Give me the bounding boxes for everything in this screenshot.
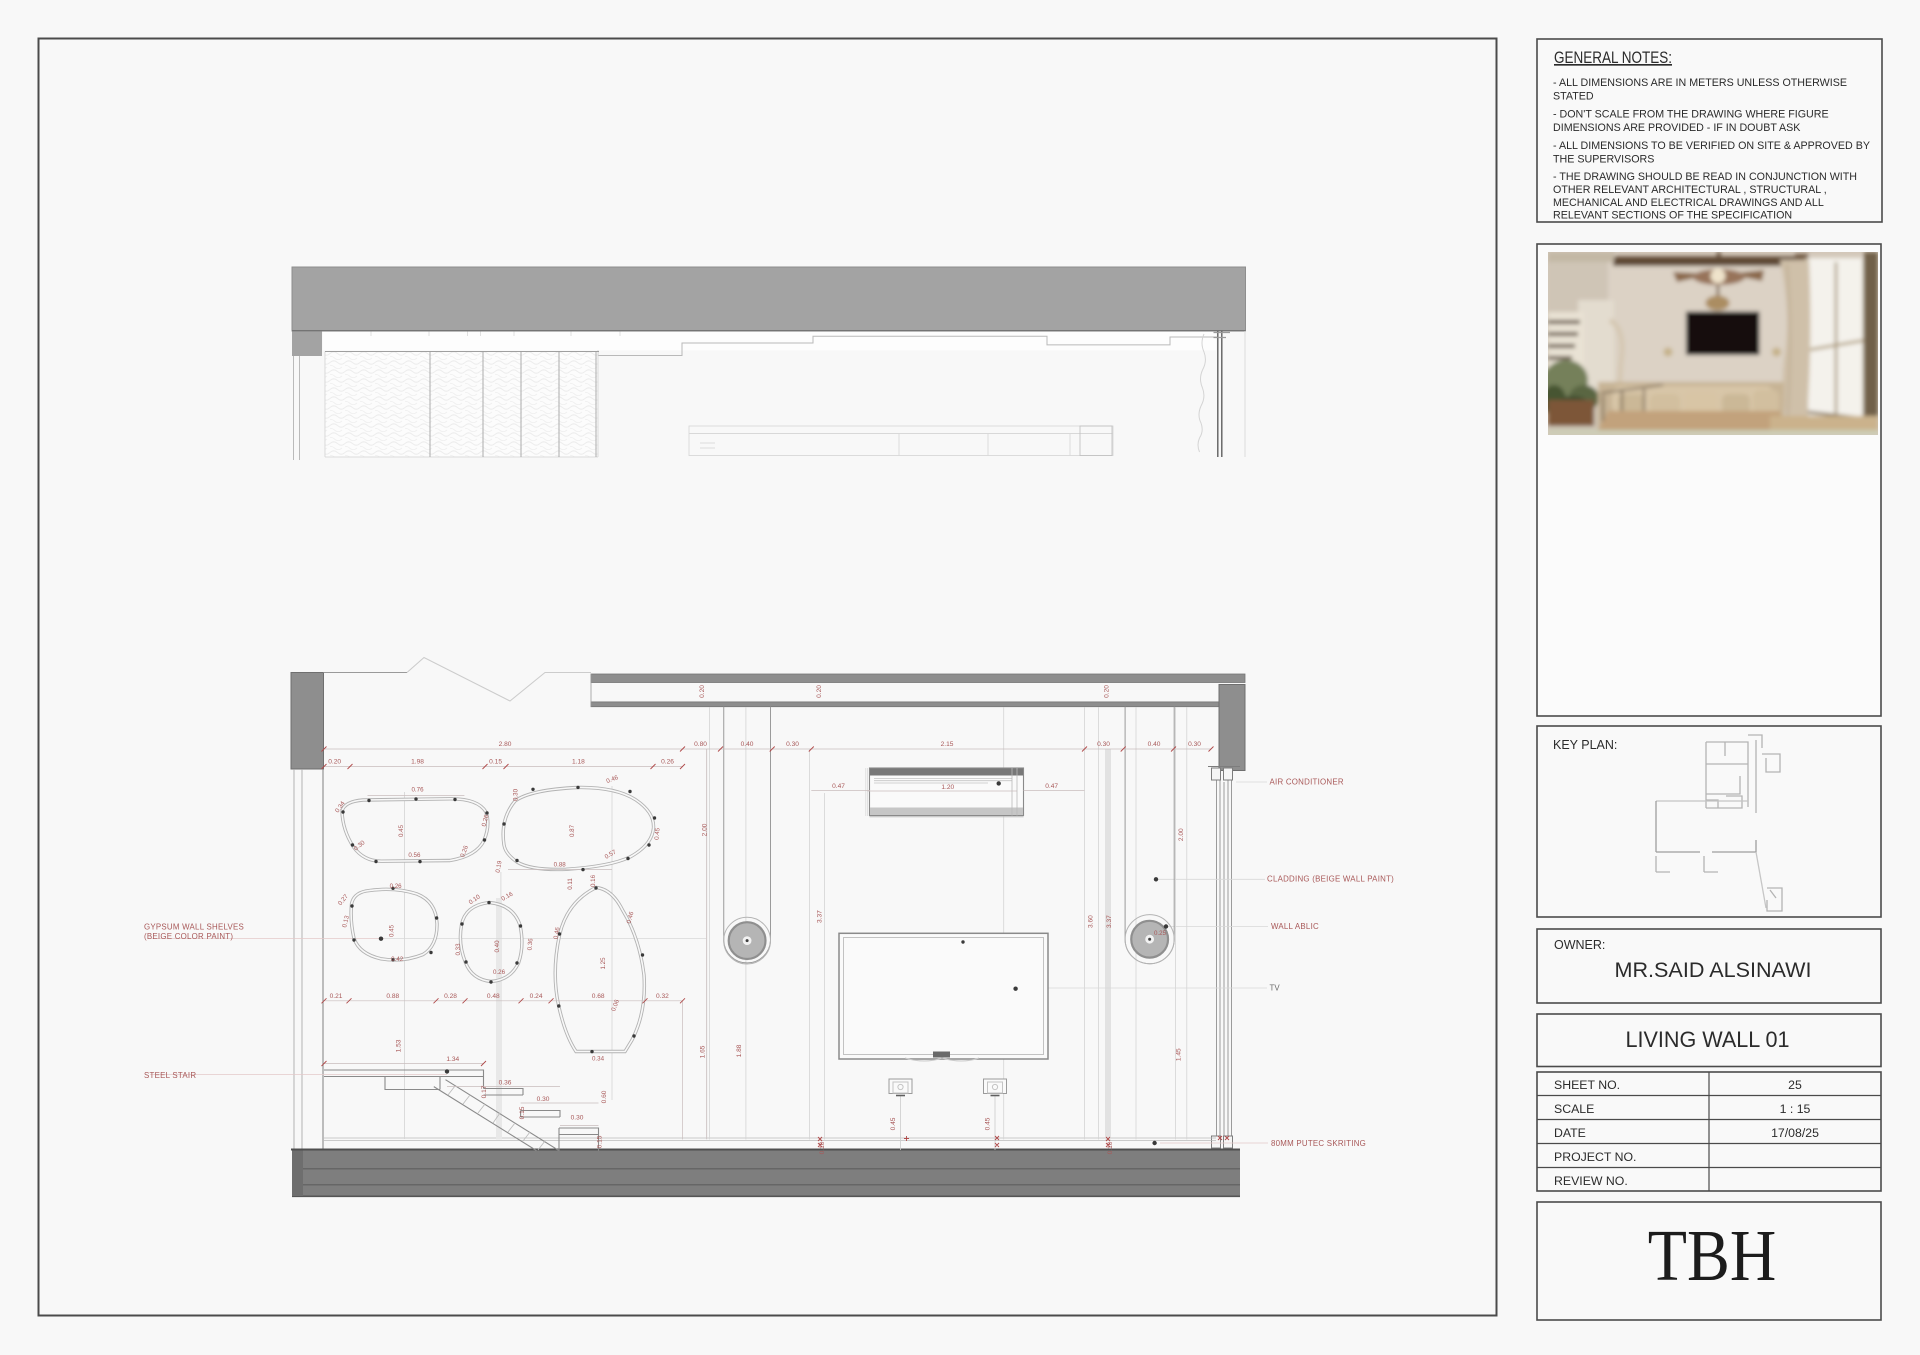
svg-text:0.26: 0.26 <box>493 969 506 976</box>
svg-text:0.88: 0.88 <box>386 993 399 1000</box>
svg-text:0.26: 0.26 <box>661 759 674 766</box>
svg-text:80MM PUTEC SKRITING: 80MM PUTEC SKRITING <box>1271 1139 1366 1148</box>
svg-text:- ALL DIMENSIONS ARE IN METERS: - ALL DIMENSIONS ARE IN METERS UNLESS OT… <box>1553 77 1847 89</box>
svg-text:RELEVANT SECTIONS OF THE SPECI: RELEVANT SECTIONS OF THE SPECIFICATION <box>1553 210 1792 222</box>
svg-text:0.20: 0.20 <box>328 759 341 766</box>
svg-text:3.60: 3.60 <box>1087 915 1094 928</box>
svg-text:3.37: 3.37 <box>817 910 824 923</box>
svg-text:0.28: 0.28 <box>444 993 457 1000</box>
svg-text:1 : 15: 1 : 15 <box>1780 1102 1811 1116</box>
svg-text:0.32: 0.32 <box>656 993 669 1000</box>
svg-text:0.87: 0.87 <box>569 824 576 837</box>
svg-text:LIVING WALL 01: LIVING WALL 01 <box>1626 1027 1790 1052</box>
svg-text:MECHANICAL AND ELECTRICAL DRAW: MECHANICAL AND ELECTRICAL DRAWINGS AND A… <box>1553 197 1824 209</box>
svg-text:- THE DRAWING SHOULD BE READ I: - THE DRAWING SHOULD BE READ IN CONJUNCT… <box>1553 171 1857 183</box>
svg-text:0.36: 0.36 <box>526 938 534 951</box>
svg-text:DIMENSIONS ARE PROVIDED - IF: DIMENSIONS ARE PROVIDED - IF IN DOUBT AS… <box>1553 122 1801 134</box>
svg-text:0.34: 0.34 <box>592 1056 605 1063</box>
svg-text:0.36: 0.36 <box>499 1080 512 1087</box>
svg-text:GENERAL NOTES:: GENERAL NOTES: <box>1554 49 1672 67</box>
svg-text:0.88: 0.88 <box>554 862 567 869</box>
svg-text:0.68: 0.68 <box>592 993 605 1000</box>
svg-text:0.30: 0.30 <box>513 788 520 801</box>
svg-text:STEEL STAIR: STEEL STAIR <box>144 1071 196 1080</box>
svg-text:WALL ABLIC: WALL ABLIC <box>1271 922 1319 931</box>
svg-text:THE SUPERVISORS: THE SUPERVISORS <box>1553 154 1654 166</box>
svg-text:2.15: 2.15 <box>941 741 954 748</box>
svg-text:1.65: 1.65 <box>700 1045 707 1058</box>
svg-text:0.25: 0.25 <box>1154 930 1167 937</box>
svg-text:0.20: 0.20 <box>1104 685 1111 698</box>
svg-text:1.25: 1.25 <box>600 957 607 970</box>
svg-text:0.24: 0.24 <box>530 993 543 1000</box>
svg-text:0.33: 0.33 <box>455 943 462 956</box>
svg-text:AIR CONDITIONER: AIR CONDITIONER <box>1270 778 1344 787</box>
svg-text:0.56: 0.56 <box>408 852 421 859</box>
svg-text:0.10: 0.10 <box>1107 1141 1114 1154</box>
svg-text:CLADDING (BEIGE WALL PAINT): CLADDING (BEIGE WALL PAINT) <box>1267 875 1394 884</box>
svg-text:- ALL DIMENSIONS TO BE VERIFIE: - ALL DIMENSIONS TO BE VERIFIED ON SITE … <box>1553 140 1870 152</box>
svg-text:0.26: 0.26 <box>390 883 403 890</box>
svg-text:0.40: 0.40 <box>494 940 501 953</box>
svg-text:2.80: 2.80 <box>499 741 512 748</box>
svg-text:0.30: 0.30 <box>537 1096 550 1103</box>
svg-text:SHEET NO.: SHEET NO. <box>1554 1078 1620 1092</box>
svg-text:2.00: 2.00 <box>702 823 709 836</box>
svg-text:OWNER:: OWNER: <box>1554 938 1605 952</box>
svg-text:0.42: 0.42 <box>391 956 404 963</box>
svg-text:0.60: 0.60 <box>601 1090 608 1103</box>
svg-text:0.45: 0.45 <box>890 1117 897 1130</box>
svg-text:REVIEW NO.: REVIEW NO. <box>1554 1174 1628 1188</box>
svg-text:SCALE: SCALE <box>1554 1102 1594 1116</box>
svg-text:MR.SAID ALSINAWI: MR.SAID ALSINAWI <box>1615 958 1812 982</box>
svg-text:1.20: 1.20 <box>941 784 954 791</box>
svg-text:0.16: 0.16 <box>590 874 597 887</box>
svg-text:0.30: 0.30 <box>786 741 799 748</box>
svg-text:0.10: 0.10 <box>819 1141 826 1154</box>
svg-text:0.30: 0.30 <box>571 1115 584 1122</box>
svg-text:0.45: 0.45 <box>389 924 396 937</box>
svg-text:PROJECT NO.: PROJECT NO. <box>1554 1150 1636 1164</box>
svg-text:0.11: 0.11 <box>567 878 574 890</box>
svg-text:0.17: 0.17 <box>481 1085 488 1098</box>
svg-text:(BEIGE COLOR PAINT): (BEIGE COLOR PAINT) <box>144 932 233 941</box>
svg-text:0.76: 0.76 <box>411 787 424 794</box>
svg-text:0.15: 0.15 <box>597 1135 604 1148</box>
svg-text:- DON'T SCALE FROM THE DRAWING: - DON'T SCALE FROM THE DRAWING WHERE FIG… <box>1553 109 1829 121</box>
svg-text:1.18: 1.18 <box>572 759 585 766</box>
svg-text:0.15: 0.15 <box>519 1106 526 1119</box>
svg-text:STATED: STATED <box>1553 91 1594 103</box>
svg-text:0.47: 0.47 <box>1045 783 1058 790</box>
svg-text:0.30: 0.30 <box>1188 741 1201 748</box>
svg-text:17/08/25: 17/08/25 <box>1771 1126 1819 1140</box>
svg-text:0.40: 0.40 <box>741 741 754 748</box>
svg-text:1.88: 1.88 <box>736 1044 743 1057</box>
svg-text:25: 25 <box>1788 1078 1802 1092</box>
svg-text:0.20: 0.20 <box>699 685 706 698</box>
svg-text:1.34: 1.34 <box>446 1056 459 1063</box>
svg-text:DATE: DATE <box>1554 1126 1586 1140</box>
svg-text:0.45: 0.45 <box>398 824 405 837</box>
svg-text:0.30: 0.30 <box>1097 741 1110 748</box>
svg-text:0.45: 0.45 <box>653 827 661 840</box>
svg-text:0.45: 0.45 <box>985 1117 992 1130</box>
svg-text:0.80: 0.80 <box>694 741 707 748</box>
svg-text:0.40: 0.40 <box>1148 741 1161 748</box>
svg-text:3.37: 3.37 <box>1106 915 1113 928</box>
svg-text:1.53: 1.53 <box>396 1039 403 1052</box>
svg-text:TV: TV <box>1270 984 1281 993</box>
svg-text:OTHER RELEVANT ARCHITECTURAL ,: OTHER RELEVANT ARCHITECTURAL , STRUCTURA… <box>1553 184 1827 196</box>
svg-text:1.45: 1.45 <box>1175 1048 1182 1061</box>
svg-text:0.20: 0.20 <box>816 685 823 698</box>
svg-text:0.21: 0.21 <box>330 993 343 1000</box>
svg-text:0.47: 0.47 <box>832 783 845 790</box>
svg-text:1.98: 1.98 <box>411 759 424 766</box>
svg-text:2.00: 2.00 <box>1178 828 1185 841</box>
svg-text:0.15: 0.15 <box>489 759 502 766</box>
svg-text:KEY PLAN:: KEY PLAN: <box>1553 738 1617 752</box>
svg-text:GYPSUM WALL SHELVES: GYPSUM WALL SHELVES <box>144 923 244 932</box>
svg-text:0.48: 0.48 <box>487 993 500 1000</box>
svg-text:TBH: TBH <box>1648 1215 1776 1296</box>
